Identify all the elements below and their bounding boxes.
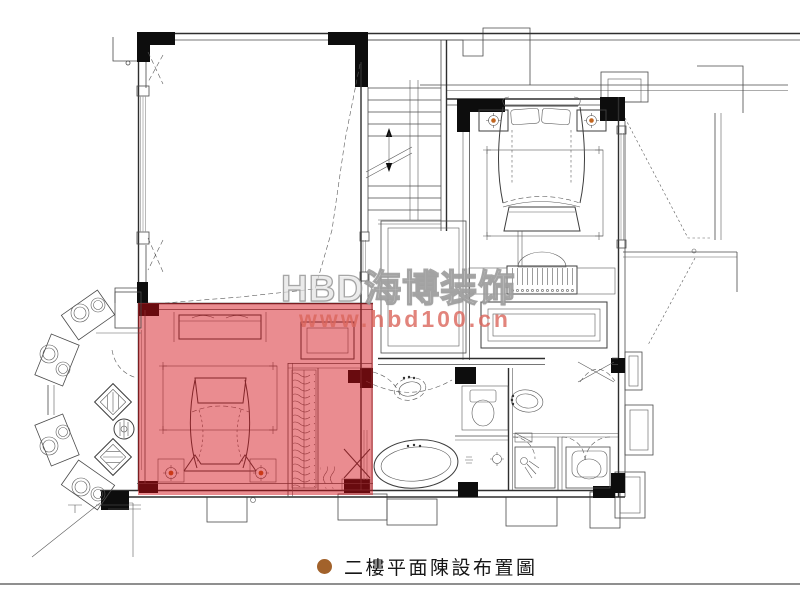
- door-swing-arc: [112, 350, 137, 378]
- bottom-rule: [0, 583, 800, 585]
- balcony-chair: [95, 439, 132, 476]
- floor-plan-page: HBD海博装饰 www.hbd100.cn 二樓平面陳設布置圖: [0, 0, 800, 607]
- staircase: [366, 80, 441, 224]
- balcony-chair: [95, 384, 132, 421]
- lamp-icon: [584, 113, 599, 128]
- lamp-icon: [486, 113, 501, 128]
- watermark-brand: HBD海博装饰: [281, 258, 516, 312]
- bathrooms: [366, 362, 615, 492]
- planter: [35, 414, 79, 466]
- planter: [61, 290, 114, 340]
- caption-title: 二樓平面陳設布置圖: [344, 553, 538, 580]
- caption-row: 二樓平面陳設布置圖: [317, 553, 538, 580]
- caption-bullet-icon: [317, 559, 332, 574]
- watermark-url: www.hbd100.cn: [299, 306, 511, 333]
- balcony: [35, 290, 141, 513]
- planter: [35, 334, 79, 386]
